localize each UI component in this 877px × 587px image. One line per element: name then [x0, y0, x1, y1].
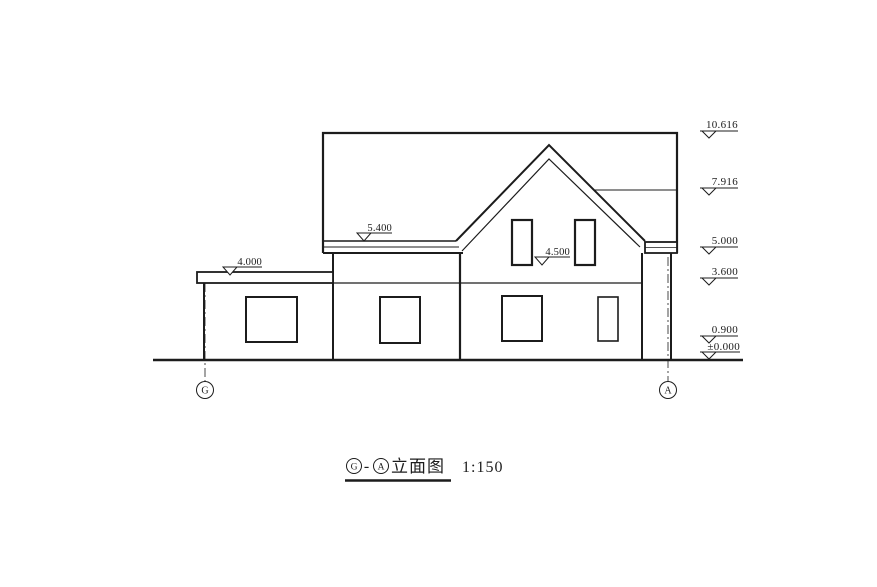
elevation-marker-3600: 3.600	[700, 266, 738, 285]
inline-marker-label: 5.400	[367, 223, 392, 234]
garage-roof-slab	[197, 272, 333, 283]
upper-left-window	[512, 220, 532, 265]
title-block: G - A 立面图 1:150	[345, 457, 503, 481]
upper-right-window	[575, 220, 595, 265]
elevation-marker-label: 5.000	[712, 235, 738, 247]
lower-center-window	[502, 296, 542, 341]
elevation-marker-label: 7.916	[712, 176, 738, 188]
elevation-triangle-icon	[702, 352, 716, 359]
elevation-triangle-icon	[702, 278, 716, 285]
title-axis-G-label: G	[351, 463, 358, 473]
elevation-triangle-icon	[702, 247, 716, 254]
garage-window	[246, 297, 297, 342]
walls	[153, 253, 743, 360]
elevation-marker-0000: ±0.000	[700, 341, 740, 359]
lower-right-window	[598, 297, 618, 341]
gable-inner-edge	[462, 159, 640, 251]
elevation-marker-label: 3.600	[712, 266, 738, 278]
inline-marker-4500: 4.500	[535, 247, 570, 265]
elevation-marker-7916: 7.916	[700, 176, 738, 195]
elevation-marker-label: 10.616	[706, 119, 738, 131]
elevation-marker-10616: 10.616	[700, 119, 738, 138]
axis-bubble-A-label: A	[664, 386, 672, 397]
elevation-drawing-sheet: G A 10.616 7.916 5.000	[0, 0, 877, 587]
drawing-title-text: 立面图	[391, 457, 445, 477]
title-separator: -	[364, 458, 370, 475]
elevation-triangle-icon	[535, 257, 549, 265]
inline-marker-5400: 5.400	[357, 223, 392, 241]
elevation-triangle-icon	[702, 131, 716, 138]
lower-left-window	[380, 297, 420, 343]
elevation-marker-label: 0.900	[712, 324, 738, 336]
elevation-marker-5000: 5.000	[700, 235, 738, 254]
axis-bubble-G-label: G	[201, 386, 208, 397]
main-roof	[323, 133, 677, 253]
title-axis-A-label: A	[378, 463, 385, 473]
inline-marker-label: 4.500	[545, 247, 570, 258]
elevation-triangle-icon	[702, 188, 716, 195]
inline-marker-label: 4.000	[237, 257, 262, 268]
elevation-markers: 10.616 7.916 5.000 3.600	[700, 119, 740, 359]
elevation-drawing: G A 10.616 7.916 5.000	[0, 0, 877, 587]
drawing-scale-text: 1:150	[462, 459, 503, 476]
main-roof-outline	[323, 133, 677, 253]
elevation-marker-label: ±0.000	[707, 341, 740, 353]
elevation-triangle-icon	[357, 233, 371, 241]
